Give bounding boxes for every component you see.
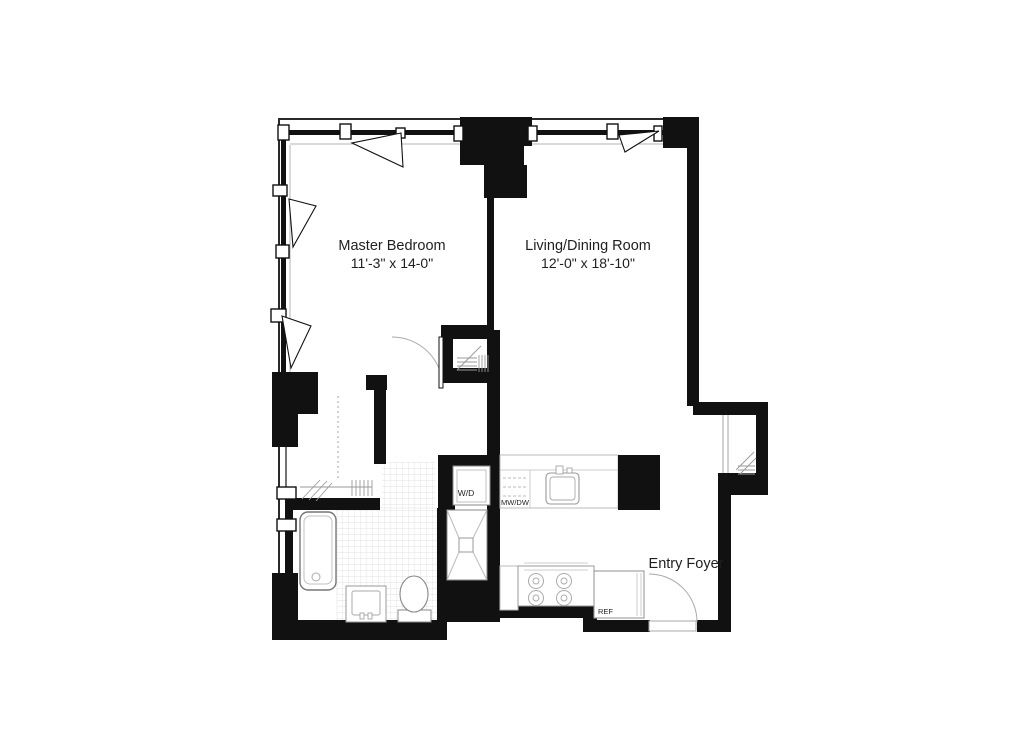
wall-tick-icon: [277, 519, 296, 531]
mullion-icon: [454, 126, 463, 141]
wall-walkin-right: [374, 378, 386, 464]
wall-bottom-right: [697, 620, 731, 632]
wall-shower-left: [437, 508, 447, 580]
wall-bathroom-left: [285, 498, 293, 575]
wall-bottom: [272, 620, 447, 640]
faucet-icon: [567, 468, 572, 473]
master-bedroom-door: [392, 337, 443, 388]
counter-end-column: [618, 455, 660, 510]
wall-right: [687, 146, 699, 406]
washer-dryer-closet: [453, 466, 490, 505]
wall-tick-icon: [277, 487, 296, 499]
mullion-icon: [340, 124, 351, 139]
column-left: [272, 372, 318, 414]
counter-stub: [500, 566, 518, 610]
casement-swing-icon: [352, 133, 403, 167]
shower-drain-icon: [459, 538, 473, 552]
wall-closet-left: [443, 333, 453, 373]
column-left-step: [272, 410, 298, 447]
mullion-icon: [273, 185, 287, 196]
faucet-icon: [556, 466, 563, 474]
wall-wd-left: [438, 455, 455, 510]
casement-swing-icon: [619, 131, 659, 152]
vanity-basin: [352, 591, 380, 615]
living-dining-dimensions: 12'-0" x 18'-10": [541, 255, 635, 271]
column-top-stem: [484, 165, 527, 198]
casement-swing-icon: [282, 316, 311, 368]
wall-foyer-bottom: [585, 620, 650, 632]
faucet-icon: [368, 613, 372, 619]
column-top: [460, 117, 532, 146]
wall-entry-closet-bottom: [718, 473, 768, 495]
entry-foyer-label: Entry Foyer: [649, 556, 724, 572]
bathtub: [300, 512, 336, 590]
floor-plan-svg: Master Bedroom 11'-3" x 14-0" Living/Din…: [0, 0, 1024, 734]
column-top-step: [460, 146, 524, 165]
stove: [518, 563, 594, 606]
mullion-icon: [607, 124, 618, 139]
mullion-icon: [278, 125, 289, 140]
washer-dryer-label: W/D: [458, 488, 475, 498]
microwave-dishwasher-label: MW/DW: [501, 498, 530, 507]
entry-closet: [723, 415, 756, 474]
living-dining-label: Living/Dining Room: [525, 238, 651, 254]
master-bedroom-dimensions: 11'-3" x 14-0": [351, 255, 433, 271]
casement-swing-icon: [289, 199, 316, 247]
toilet: [400, 576, 428, 612]
master-bedroom-label: Master Bedroom: [338, 238, 445, 254]
faucet-icon: [360, 613, 364, 619]
wall-top-right-corner: [663, 117, 699, 148]
entry-door: [649, 574, 697, 631]
wall-bathroom-top: [288, 498, 380, 510]
wall-bedroom-living-divider: [487, 198, 494, 332]
mullion-icon: [528, 126, 537, 141]
refrigerator-label: REF: [598, 607, 613, 616]
floor-plan-image: Master Bedroom 11'-3" x 14-0" Living/Din…: [0, 0, 1024, 734]
mullion-icon: [276, 245, 289, 258]
kitchen: [500, 455, 660, 618]
